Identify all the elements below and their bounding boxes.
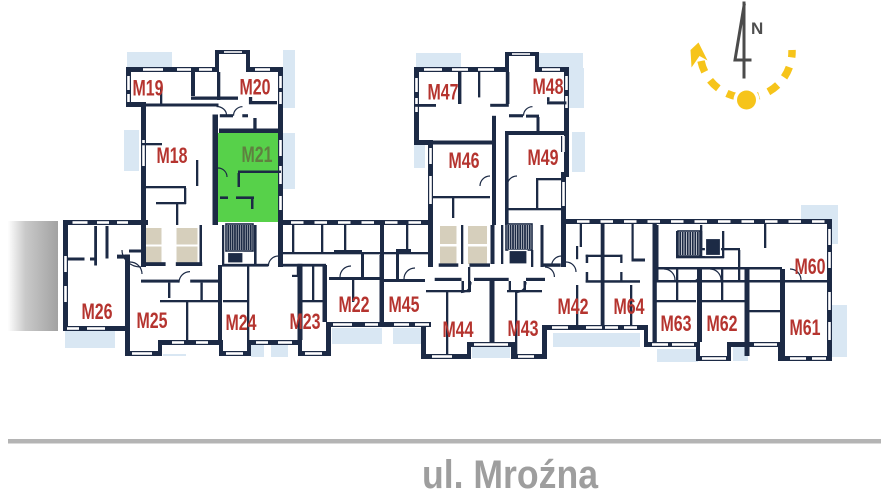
- svg-text:M25: M25: [137, 308, 168, 333]
- svg-text:ul. Mroźna: ul. Mroźna: [422, 453, 599, 497]
- svg-text:M26: M26: [82, 299, 113, 324]
- svg-text:M63: M63: [661, 311, 692, 336]
- svg-text:M47: M47: [428, 80, 459, 105]
- svg-text:M21: M21: [242, 142, 273, 167]
- svg-text:M22: M22: [339, 292, 370, 317]
- svg-text:M64: M64: [614, 294, 645, 319]
- svg-text:M43: M43: [508, 316, 539, 341]
- svg-text:M45: M45: [389, 292, 420, 317]
- svg-text:M49: M49: [528, 145, 559, 170]
- svg-text:M44: M44: [443, 317, 474, 342]
- svg-text:M24: M24: [226, 310, 257, 335]
- svg-text:M19: M19: [133, 76, 164, 101]
- svg-text:M46: M46: [449, 148, 480, 173]
- svg-text:M20: M20: [240, 75, 271, 100]
- svg-text:M23: M23: [290, 309, 321, 334]
- svg-text:N: N: [751, 19, 763, 38]
- svg-text:M60: M60: [795, 254, 826, 279]
- svg-text:M61: M61: [790, 315, 821, 340]
- svg-text:M62: M62: [707, 311, 738, 336]
- svg-text:M48: M48: [533, 74, 564, 99]
- svg-text:M42: M42: [558, 294, 589, 319]
- svg-text:M18: M18: [157, 143, 188, 168]
